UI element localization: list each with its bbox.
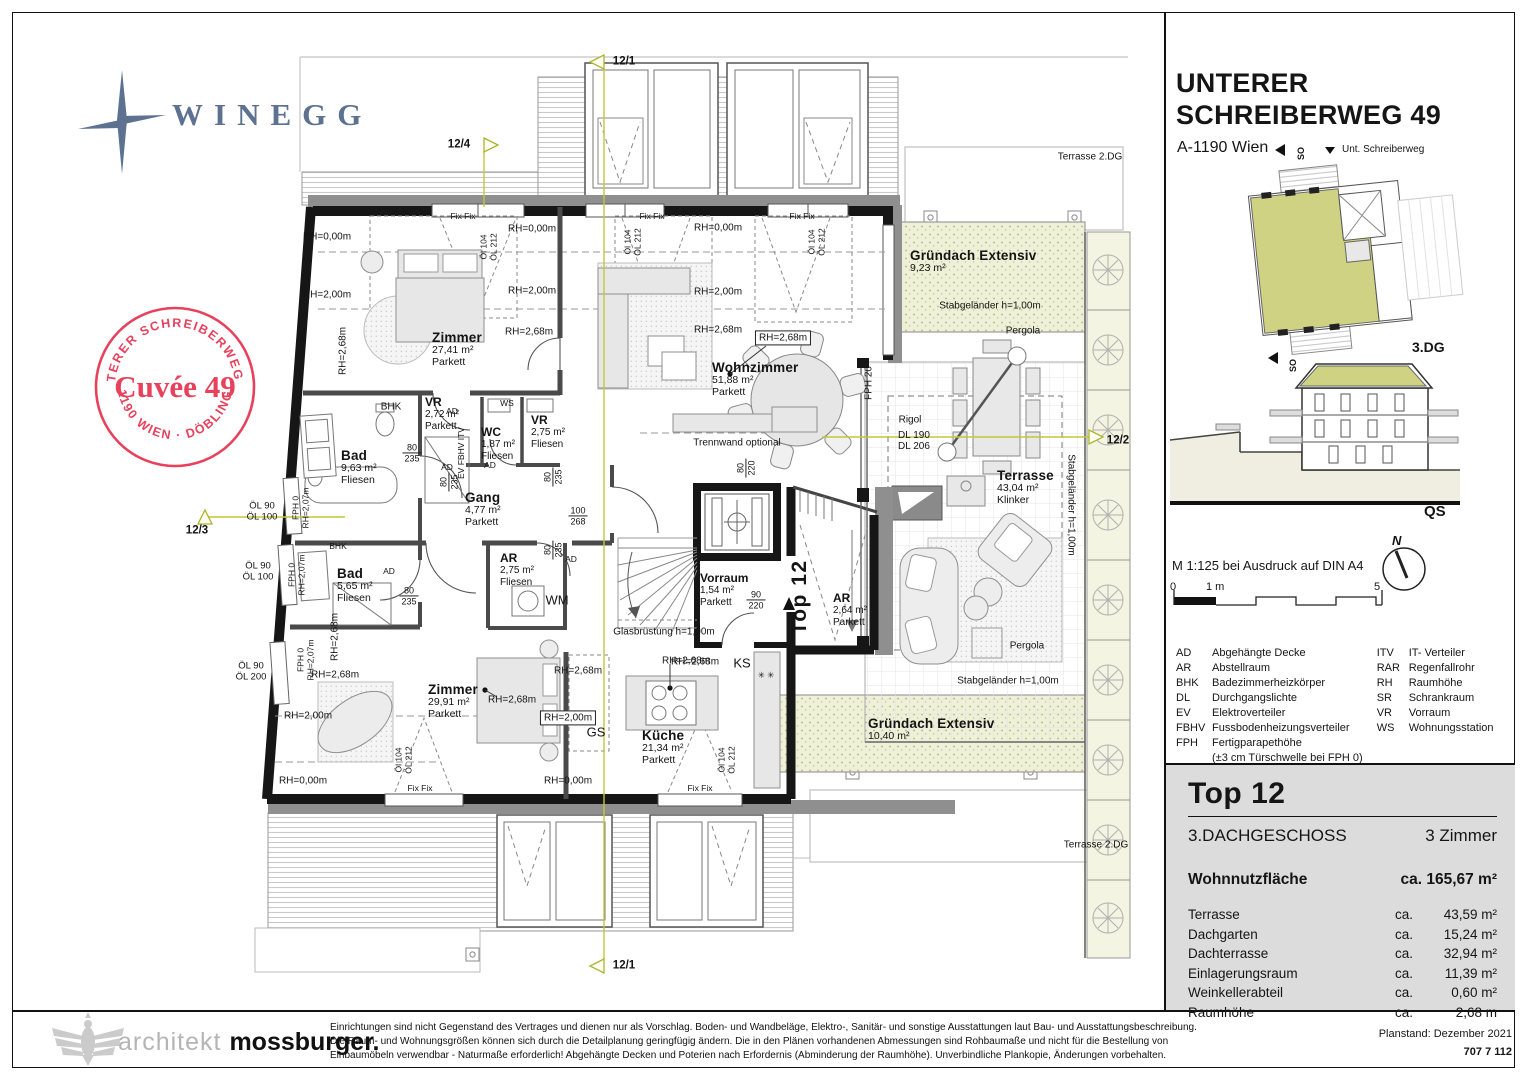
- site-plan: [1246, 153, 1467, 357]
- unit-row: Dachgartenca.15,24 m²: [1188, 925, 1497, 945]
- unit-row-label: Einlagerungsraum: [1188, 964, 1395, 984]
- disclaimer-text: Einrichtungen sind nicht Gegenstand des …: [330, 1021, 1197, 1064]
- livingroom-furniture: [598, 263, 867, 470]
- unit-rooms: 3 Zimmer: [1425, 826, 1497, 846]
- unit-row: Terrasseca.43,59 m²: [1188, 905, 1497, 925]
- legend-abbr: SR: [1377, 691, 1409, 706]
- scale-zero: 0: [1170, 581, 1176, 593]
- winegg-logo-text: WINEGG: [172, 97, 372, 133]
- legend-desc: Durchgangslichte: [1212, 691, 1297, 706]
- entry-arrow: [783, 597, 795, 610]
- unit-row-ca: ca.: [1395, 964, 1425, 984]
- section-label: QS: [1424, 503, 1446, 520]
- legend-row: FBHVFussbodenheizungsverteiler: [1176, 721, 1363, 736]
- plan-number: 707 7 112: [1230, 1044, 1512, 1062]
- unit-row-value: 0,60 m²: [1425, 983, 1497, 1003]
- legend-abbr: RAR: [1377, 661, 1409, 676]
- terrace-glazing: [857, 358, 869, 646]
- unit-name: Top 12: [1188, 777, 1497, 811]
- abbreviation-legend: ADAbgehängte DeckeARAbstellraumBHKBadezi…: [1176, 646, 1506, 766]
- legend-row: SRSchrankraum: [1377, 691, 1494, 706]
- legend-row: BHKBadezimmerheizkörper: [1176, 676, 1363, 691]
- legend-abbr: VR: [1377, 706, 1409, 721]
- legend-row: EVElektroverteiler: [1176, 706, 1363, 721]
- legend-abbr: BHK: [1176, 676, 1212, 691]
- unit-area-value: ca. 165,67 m²: [1400, 871, 1497, 889]
- legend-abbr: FBHV: [1176, 721, 1212, 736]
- legend-column-left: ADAbgehängte DeckeARAbstellraumBHKBadezi…: [1176, 646, 1363, 766]
- disclaimer-line: Die Raum- und Wohnungsgrößen können sich…: [330, 1035, 1197, 1049]
- legend-desc: Fussbodenheizungsverteiler: [1212, 721, 1350, 736]
- window: [270, 478, 302, 705]
- planter-strip: [1087, 232, 1130, 958]
- unit-row: Raumhöheca.2,68 m: [1188, 1003, 1497, 1023]
- section-drawing: [1170, 364, 1460, 503]
- dormer-window: [585, 63, 718, 196]
- legend-abbr: AR: [1176, 661, 1212, 676]
- unit-rule: [1188, 816, 1497, 817]
- legend-desc: Elektroverteiler: [1212, 706, 1285, 721]
- legend-desc: Wohnungsstation: [1409, 721, 1494, 736]
- legend-desc: Schrankraum: [1409, 691, 1474, 706]
- scale-text: M 1:125 bei Ausdruck auf DIN A4: [1172, 558, 1364, 573]
- dormer-window: [727, 63, 868, 196]
- legend-row: DLDurchgangslichte: [1176, 691, 1363, 706]
- legend-desc: Abstellraum: [1212, 661, 1270, 676]
- unit-info-panel: Top 12 3.DACHGESCHOSS 3 Zimmer Wohnnutzf…: [1166, 763, 1515, 1010]
- siteplan-direction-bottom: SO: [1288, 359, 1298, 372]
- scale-five: 5: [1374, 581, 1380, 593]
- unit-row-value: 32,94 m²: [1425, 944, 1497, 964]
- siteplan-street-label: Unt. Schreiberweg: [1342, 144, 1424, 155]
- disclaimer-line: Einbaumöbeln verwendbar - Naturmaße erfo…: [330, 1049, 1197, 1063]
- legend-column-right: ITVIT- VerteilerRARRegenfallrohrRHRaumhö…: [1377, 646, 1494, 766]
- project-title-line2: SCHREIBERWEG 49: [1176, 100, 1441, 132]
- north-label: N: [1392, 533, 1401, 548]
- unit-row-ca: ca.: [1395, 1003, 1425, 1023]
- green-roof-top: [897, 222, 1085, 332]
- unit-row-value: 11,39 m²: [1425, 964, 1497, 984]
- unit-floor: 3.DACHGESCHOSS: [1188, 826, 1347, 846]
- plan-status-block: Planstand: Dezember 2021 707 7 112: [1230, 1026, 1512, 1061]
- unit-row-ca: ca.: [1395, 944, 1425, 964]
- unit-area-label: Wohnnutzfläche: [1188, 871, 1307, 889]
- terrace-dining-table: [953, 340, 1040, 474]
- siteplan-floor-label: 3.DG: [1412, 339, 1445, 355]
- legend-desc: Fertigparapethöhe: [1212, 736, 1302, 751]
- unit-row-label: Raumhöhe: [1188, 1003, 1395, 1023]
- scale-one-meter: 1 m: [1206, 581, 1224, 593]
- elevator: [705, 494, 769, 550]
- legend-desc: Regenfallrohr: [1409, 661, 1475, 676]
- legend-row: ITVIT- Verteiler: [1377, 646, 1494, 661]
- legend-desc: Vorraum: [1409, 706, 1451, 721]
- legend-desc: Badezimmerheizkörper: [1212, 676, 1325, 691]
- floor-plan: [198, 55, 1130, 973]
- unit-row-label: Dachgarten: [1188, 925, 1395, 945]
- unit-row-ca: ca.: [1395, 983, 1425, 1003]
- unit-row: Weinkellerabteilca.0,60 m²: [1188, 983, 1497, 1003]
- legend-abbr: RH: [1377, 676, 1409, 691]
- legend-row: VRVorraum: [1377, 706, 1494, 721]
- eagle-icon: [52, 1012, 124, 1066]
- bedroom1-furniture: [361, 250, 484, 364]
- floorplan-sheet: UNTERER SCHREIBERWEG 49 · 1190 WIEN · DÖ…: [0, 0, 1527, 1080]
- legend-abbr: AD: [1176, 646, 1212, 661]
- north-indicator: [1383, 548, 1425, 590]
- unit-detail-rows: Terrasseca.43,59 m²Dachgartenca.15,24 m²…: [1188, 905, 1497, 1022]
- kitchen-furniture: [626, 652, 780, 788]
- unit-row-value: 15,24 m²: [1425, 925, 1497, 945]
- project-title: UNTERER SCHREIBERWEG 49: [1176, 68, 1441, 132]
- legend-desc: Abgehängte Decke: [1212, 646, 1306, 661]
- legend-row: FPHFertigparapethöhe: [1176, 736, 1363, 751]
- stamp-center-text: Cuvée 49: [114, 369, 235, 404]
- unit-row-label: Weinkellerabteil: [1188, 983, 1395, 1003]
- dormer-window: [497, 815, 612, 927]
- legend-row: RARRegenfallrohr: [1377, 661, 1494, 676]
- dormer-window: [650, 815, 763, 927]
- unit-row-value: 2,68 m: [1425, 1003, 1497, 1023]
- project-address: A-1190 Wien: [1177, 139, 1268, 157]
- unit-row-ca: ca.: [1395, 925, 1425, 945]
- legend-abbr: EV: [1176, 706, 1212, 721]
- legend-abbr: WS: [1377, 721, 1409, 736]
- bathroom-fixtures: [298, 399, 553, 625]
- architect-logo-light: architekt: [118, 1028, 229, 1056]
- legend-row: WSWohnungsstation: [1377, 721, 1494, 736]
- unit-row-label: Dachterrasse: [1188, 944, 1395, 964]
- plan-status-date: Planstand: Dezember 2021: [1230, 1026, 1512, 1044]
- siteplan-direction-top: SO: [1296, 147, 1306, 160]
- disclaimer-line: Einrichtungen sind nicht Gegenstand des …: [330, 1021, 1197, 1035]
- legend-row: ADAbgehängte Decke: [1176, 646, 1363, 661]
- legend-abbr: DL: [1176, 691, 1212, 706]
- legend-desc: Raumhöhe: [1409, 676, 1463, 691]
- legend-abbr: FPH: [1176, 736, 1212, 751]
- cuvee-stamp: UNTERER SCHREIBERWEG 49 · 1190 WIEN · DÖ…: [0, 0, 254, 466]
- unit-row-value: 43,59 m²: [1425, 905, 1497, 925]
- unit-row: Dachterrasseca.32,94 m²: [1188, 944, 1497, 964]
- legend-row: RHRaumhöhe: [1377, 676, 1494, 691]
- legend-abbr: ITV: [1377, 646, 1409, 661]
- legend-desc: IT- Verteiler: [1409, 646, 1465, 661]
- legend-row: ARAbstellraum: [1176, 661, 1363, 676]
- unit-row-label: Terrasse: [1188, 905, 1395, 925]
- winegg-star-icon: [78, 70, 166, 174]
- unit-row: Einlagerungsraumca.11,39 m²: [1188, 964, 1497, 984]
- unit-row-ca: ca.: [1395, 905, 1425, 925]
- project-title-line1: UNTERER: [1176, 68, 1441, 100]
